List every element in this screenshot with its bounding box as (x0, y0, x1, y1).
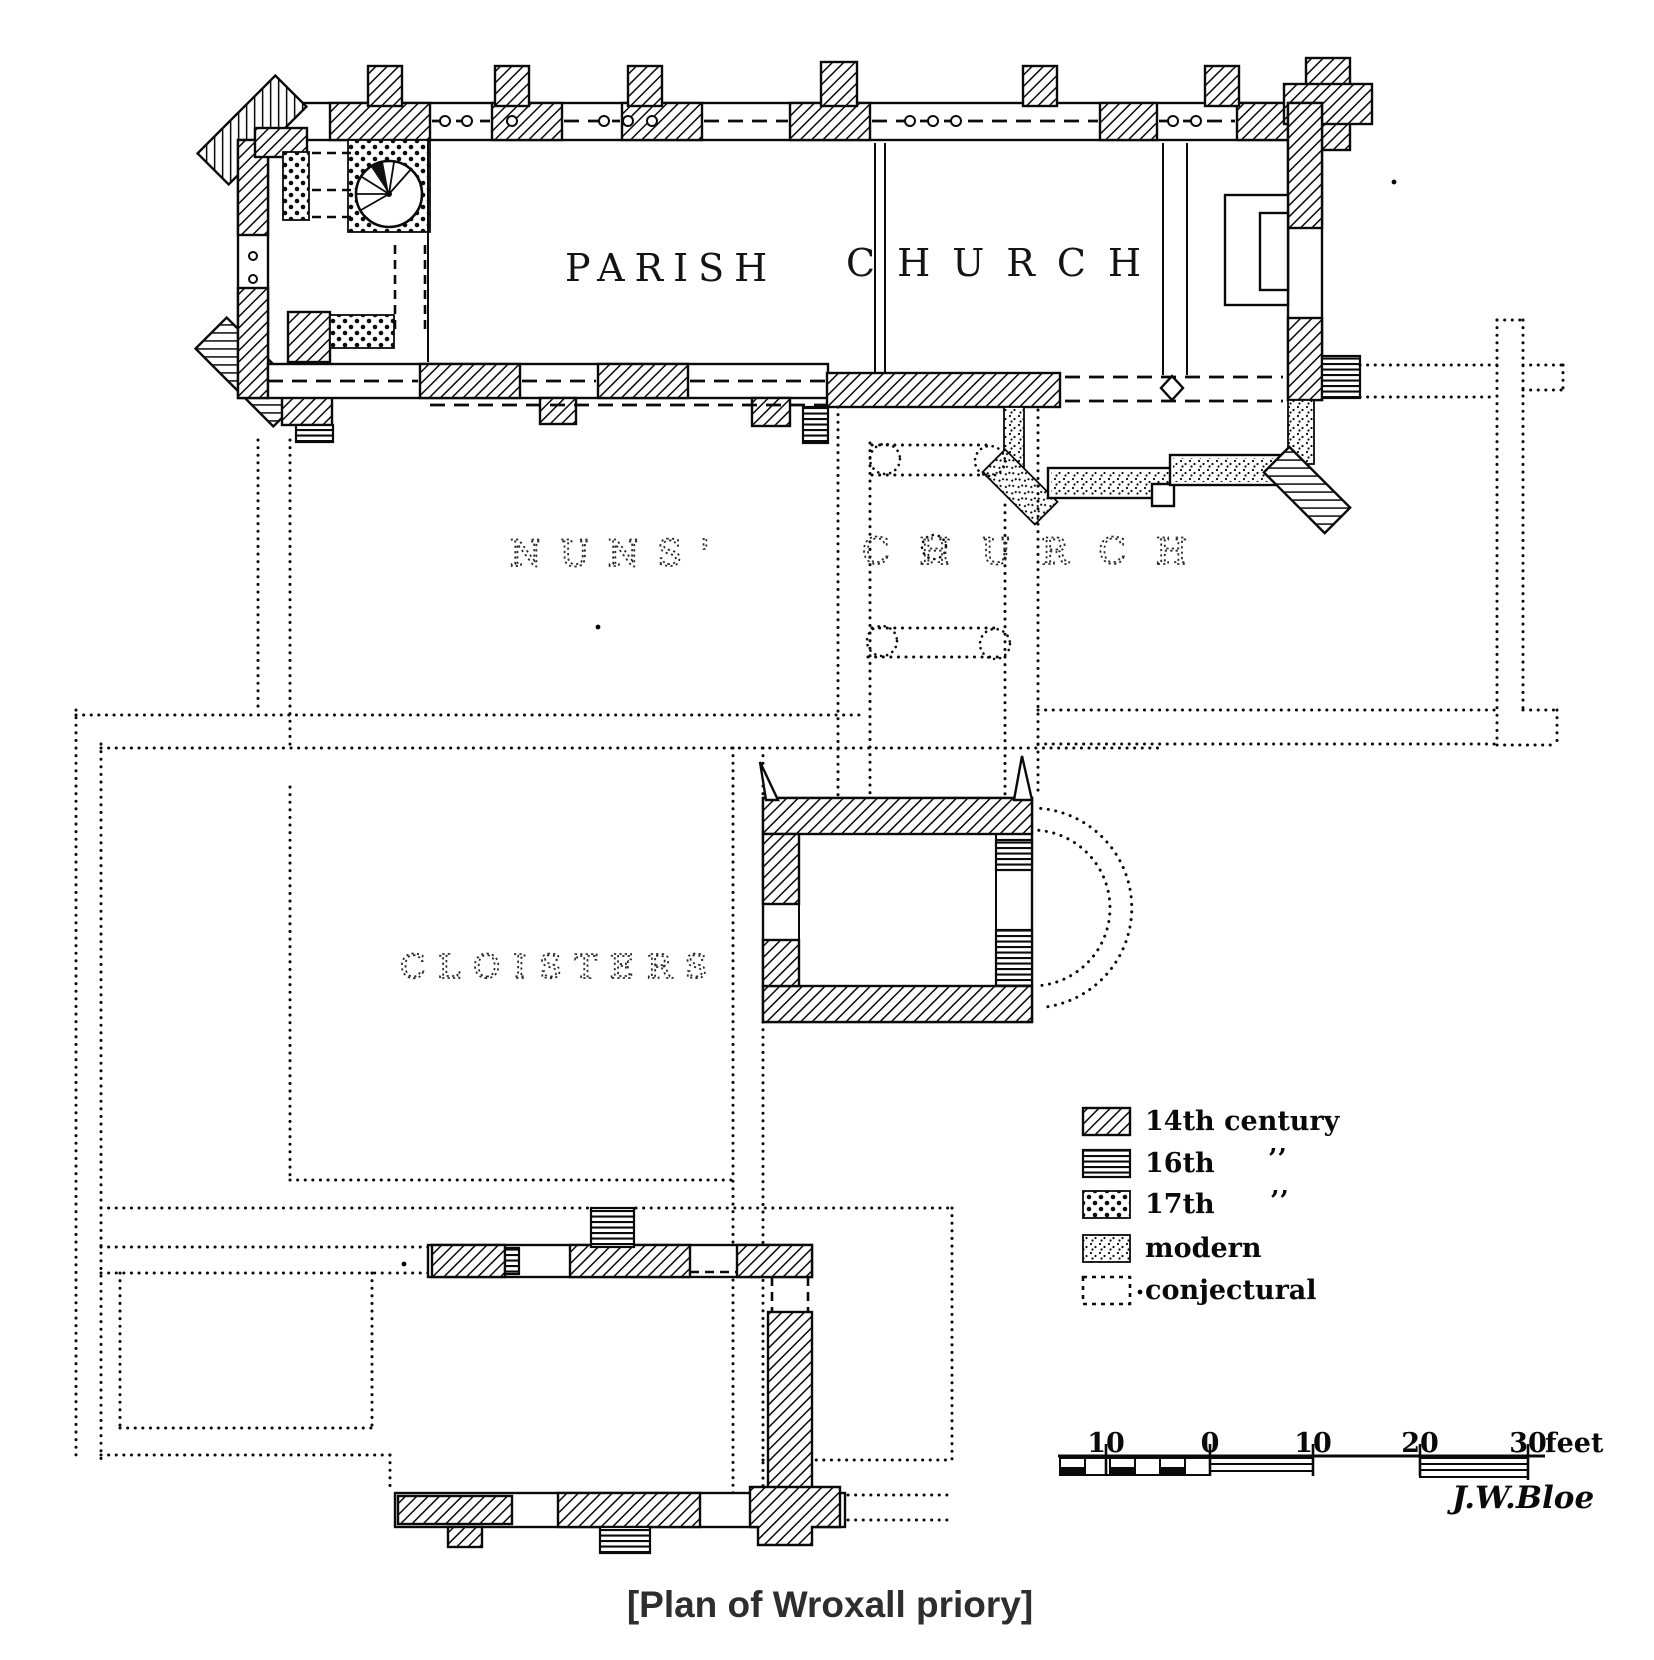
pier-diamond (1161, 376, 1183, 400)
priory-plan-page: PARISH CHURCH NUNS' CHURCH CLOISTERS 14t… (0, 0, 1654, 1660)
north-buttresses (368, 62, 1239, 106)
legend-label-14th-century: 14th century (1145, 1106, 1341, 1137)
legend-ditto-17th: ’’ (1270, 1186, 1289, 1217)
north-wall-hatch (790, 103, 870, 140)
surveyor-signature: J.W.Bloe (1447, 1480, 1594, 1516)
legend-swatch-16th-century (1083, 1150, 1130, 1177)
east-range-wall (768, 1312, 812, 1508)
south-buttress (448, 1527, 482, 1547)
pier-respond (867, 626, 897, 656)
16th-century-wall (996, 930, 1032, 986)
south-porch (282, 395, 332, 425)
legend-swatch-conjectural (1083, 1277, 1130, 1304)
legend-swatch-17th-century (1083, 1191, 1130, 1218)
parish-church-label-word1: PARISH (565, 246, 777, 290)
legend-label-17th-century: 17th (1145, 1189, 1215, 1220)
pier-respond (870, 444, 900, 474)
parish-church-label-word2: CHURCH (846, 241, 1163, 285)
chapter-house (760, 756, 1032, 1022)
south-buttress (752, 398, 790, 426)
legend-label-16th-century: 16th (1145, 1148, 1215, 1179)
south-wall-thick (827, 373, 1060, 407)
16th-century-stub (803, 407, 828, 443)
north-wall-hatch (622, 103, 702, 140)
17th-century-patch (283, 152, 309, 220)
16th-century-buttress (1322, 356, 1360, 398)
nuns-church-label-word1: NUNS' (510, 534, 728, 575)
cloisters-label: CLOISTERS (400, 947, 720, 986)
17th-century-patch (330, 315, 394, 348)
scale-bar: 10 0 10 20 30 feet (1058, 1428, 1604, 1480)
wall-spur (1014, 756, 1032, 800)
legend: 14th century 16th ’’ 17th ’’ modern conj… (1083, 1106, 1341, 1306)
scale-unit-label: feet (1545, 1428, 1604, 1459)
south-buttress (540, 398, 576, 424)
apse-arcs (1039, 808, 1132, 1007)
figure-caption: [Plan of Wroxall priory] (627, 1584, 1033, 1625)
16th-century-stub (591, 1208, 634, 1247)
legend-swatch-14th-century (1083, 1108, 1130, 1135)
south-range-walls (395, 1208, 845, 1553)
north-wall-hatch (330, 103, 430, 140)
spiral-stair (356, 161, 422, 227)
legend-label-modern: modern (1145, 1233, 1262, 1264)
south-chapel (983, 400, 1351, 533)
legend-swatch-modern (1083, 1235, 1130, 1262)
south-wall (268, 364, 1060, 443)
legend-label-conjectural: conjectural (1145, 1275, 1317, 1306)
altar (1260, 213, 1288, 290)
north-wall-hatch (1100, 103, 1157, 140)
16th-century-wall (996, 840, 1032, 870)
south-porch-16th (296, 425, 333, 442)
priory-plan-figure: PARISH CHURCH NUNS' CHURCH CLOISTERS 14t… (0, 0, 1654, 1660)
legend-ditto-16th: ’’ (1268, 1144, 1287, 1175)
16th-century-stub (600, 1527, 650, 1553)
nuns-church-label-word2: CHURCH (862, 532, 1217, 573)
north-wall-hatch (492, 103, 562, 140)
parish-church-plan (196, 58, 1372, 533)
wall-corner (750, 1487, 840, 1545)
